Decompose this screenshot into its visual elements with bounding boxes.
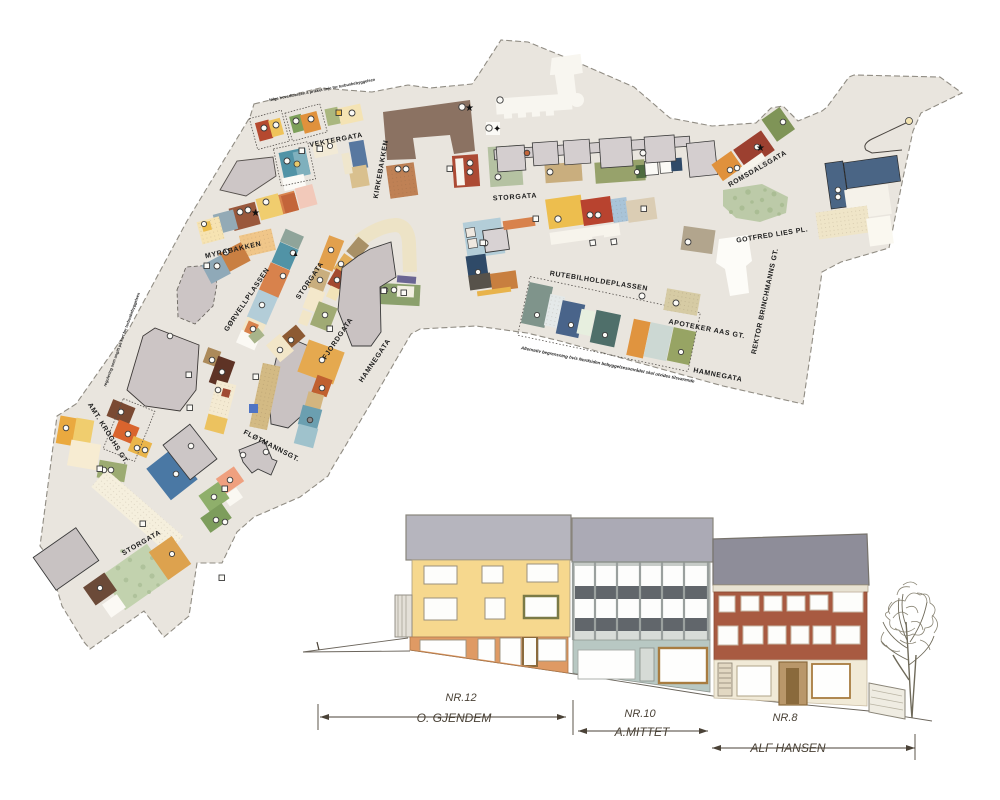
svg-text:NR.8: NR.8 <box>772 712 798 724</box>
svg-text:NR.12: NR.12 <box>445 692 476 704</box>
svg-text:✦: ✦ <box>493 124 501 135</box>
svg-text:▲: ▲ <box>292 251 299 258</box>
svg-text:NR.10: NR.10 <box>624 708 656 720</box>
svg-text:ALF HANSEN: ALF HANSEN <box>749 741 825 755</box>
svg-text:O. GJENDEM: O. GJENDEM <box>417 711 492 725</box>
svg-text:★: ★ <box>465 103 474 114</box>
svg-text:A.MITTET: A.MITTET <box>614 725 671 739</box>
svg-text:★: ★ <box>756 143 765 154</box>
svg-text:★: ★ <box>251 208 260 219</box>
